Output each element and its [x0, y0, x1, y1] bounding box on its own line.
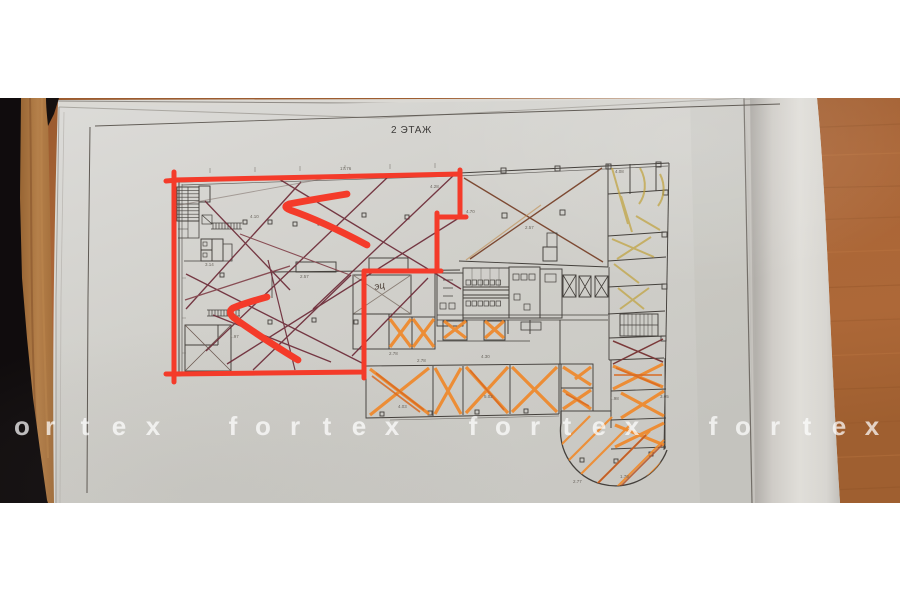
svg-text:r: r: [45, 411, 55, 441]
svg-text:4.08: 4.08: [615, 169, 624, 174]
svg-text:4.30: 4.30: [481, 354, 490, 359]
svg-text:эц: эц: [374, 280, 387, 293]
svg-text:r: r: [530, 411, 540, 441]
svg-text:e: e: [832, 411, 846, 441]
svg-text:o: o: [255, 411, 271, 441]
svg-text:o: o: [735, 411, 751, 441]
svg-text:2.77: 2.77: [573, 479, 582, 484]
svg-text:1.79: 1.79: [620, 474, 629, 479]
svg-text:o: o: [14, 411, 30, 441]
svg-text:t: t: [803, 411, 812, 441]
svg-text:f: f: [469, 411, 478, 441]
svg-text:3.14: 3.14: [205, 262, 214, 267]
svg-text:4.10: 4.10: [250, 214, 259, 219]
svg-text:e: e: [352, 411, 366, 441]
svg-text:2.78: 2.78: [389, 351, 398, 356]
svg-text:r: r: [770, 411, 780, 441]
svg-text:t: t: [323, 411, 332, 441]
svg-text:3.05: 3.05: [660, 394, 669, 399]
svg-text:5.02: 5.02: [484, 394, 493, 399]
svg-text:2 ЭТАЖ: 2 ЭТАЖ: [391, 125, 432, 136]
svg-text:r: r: [290, 411, 300, 441]
svg-text:t: t: [563, 411, 572, 441]
svg-text:2.57: 2.57: [300, 274, 309, 279]
svg-text:2.57: 2.57: [525, 225, 534, 230]
svg-text:t: t: [81, 411, 90, 441]
svg-text:17.76: 17.76: [340, 166, 352, 171]
svg-text:4.28: 4.28: [430, 184, 439, 189]
svg-text:1.98: 1.98: [610, 396, 619, 401]
svg-text:x: x: [865, 411, 880, 441]
svg-text:e: e: [592, 411, 606, 441]
svg-text:e: e: [112, 411, 126, 441]
svg-text:x: x: [385, 411, 400, 441]
svg-text:4.03: 4.03: [398, 404, 407, 409]
svg-text:2.78: 2.78: [417, 358, 426, 363]
svg-text:f: f: [229, 411, 238, 441]
svg-text:o: o: [495, 411, 511, 441]
svg-text:4.70: 4.70: [466, 209, 475, 214]
svg-text:x: x: [625, 411, 640, 441]
svg-text:f: f: [709, 411, 718, 441]
svg-text:1.97: 1.97: [230, 334, 239, 339]
svg-text:x: x: [146, 411, 161, 441]
